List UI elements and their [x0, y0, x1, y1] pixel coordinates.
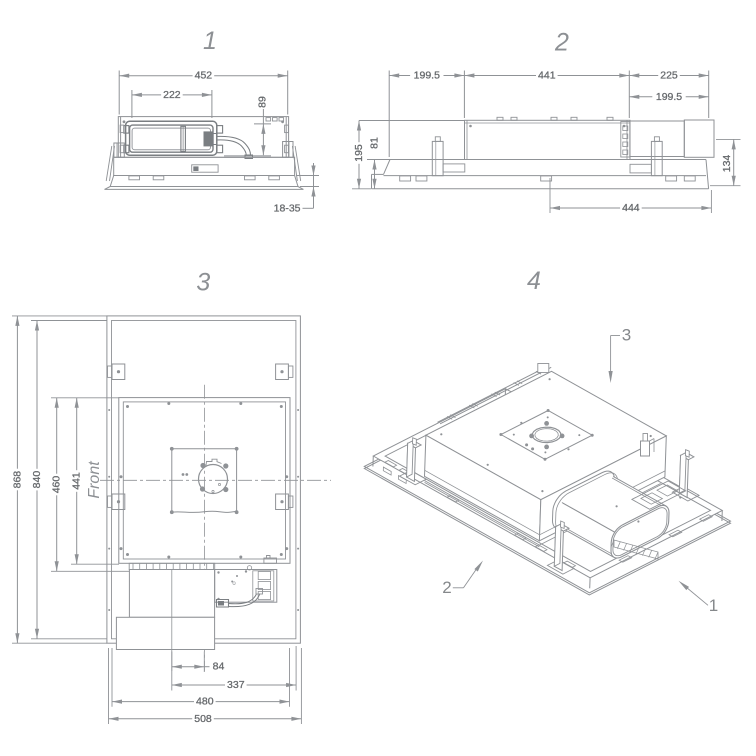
- svg-text:134: 134: [721, 155, 733, 173]
- svg-text:840: 840: [31, 471, 43, 489]
- svg-text:460: 460: [51, 476, 63, 494]
- svg-text:89: 89: [257, 96, 269, 108]
- svg-text:3: 3: [196, 268, 210, 296]
- svg-text:3: 3: [622, 325, 631, 344]
- svg-text:199.5: 199.5: [656, 91, 682, 103]
- svg-text:868: 868: [11, 471, 23, 489]
- svg-text:441: 441: [538, 70, 556, 82]
- svg-text:508: 508: [194, 713, 212, 725]
- svg-text:1: 1: [709, 596, 718, 615]
- svg-text:195: 195: [353, 144, 365, 162]
- svg-text:337: 337: [227, 679, 245, 691]
- svg-text:4: 4: [527, 267, 541, 295]
- svg-text:81: 81: [369, 137, 381, 149]
- svg-text:480: 480: [196, 696, 214, 708]
- svg-text:452: 452: [195, 70, 213, 82]
- svg-text:441: 441: [71, 472, 83, 490]
- svg-text:18-35: 18-35: [274, 202, 301, 214]
- svg-text:84: 84: [213, 661, 225, 673]
- svg-text:2: 2: [442, 578, 451, 597]
- svg-text:444: 444: [622, 202, 640, 214]
- svg-text:Front: Front: [86, 461, 103, 499]
- svg-text:2: 2: [554, 29, 569, 57]
- svg-text:225: 225: [660, 70, 678, 82]
- svg-text:1: 1: [203, 27, 217, 55]
- svg-text:199.5: 199.5: [414, 70, 440, 82]
- svg-text:222: 222: [163, 89, 181, 101]
